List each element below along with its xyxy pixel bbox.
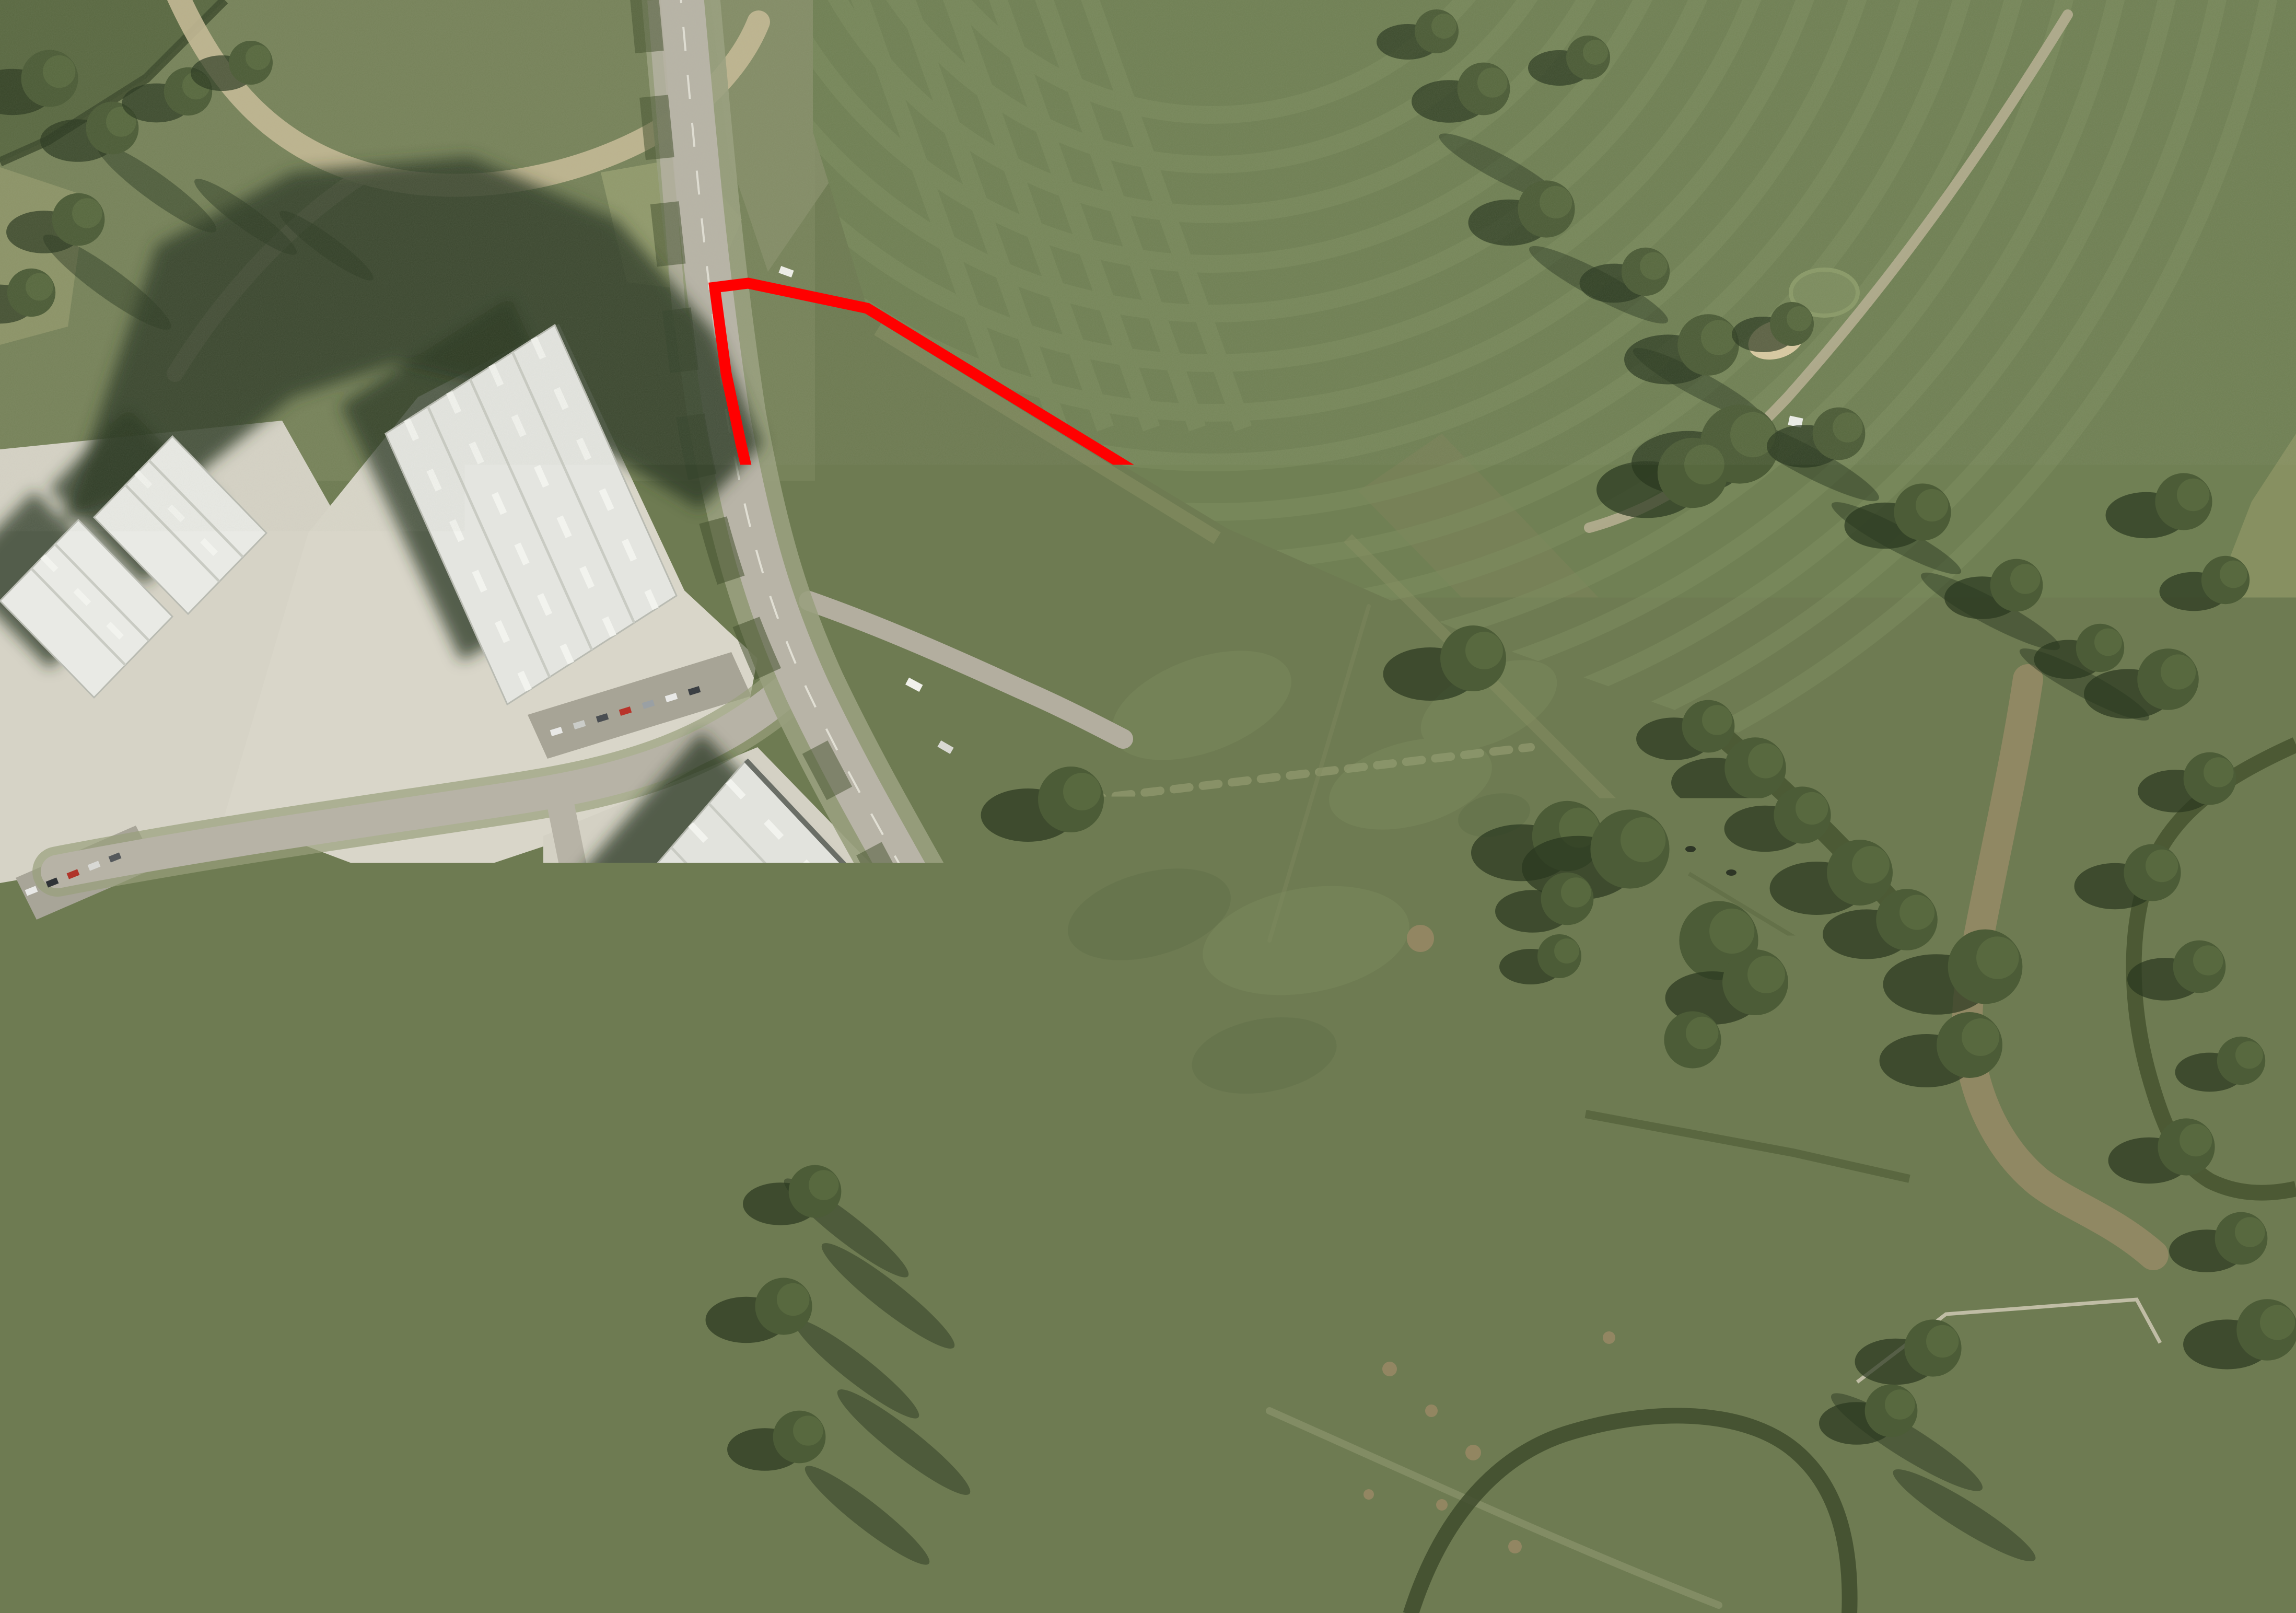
photo-grain xyxy=(0,0,2296,1613)
scale-label-200m: 200 m xyxy=(698,1541,815,1580)
scale-label-zero: 0 xyxy=(5,1541,29,1580)
attribution-text: © Crown Copyright and database rights 20… xyxy=(1018,1572,2290,1612)
aerial-map-view: 0 100 m 200 m © Crown Copyright and data… xyxy=(0,0,2296,1613)
scale-label-100m: 100 m xyxy=(322,1541,439,1580)
aerial-imagery: 0 100 m 200 m © Crown Copyright and data… xyxy=(0,0,2296,1613)
